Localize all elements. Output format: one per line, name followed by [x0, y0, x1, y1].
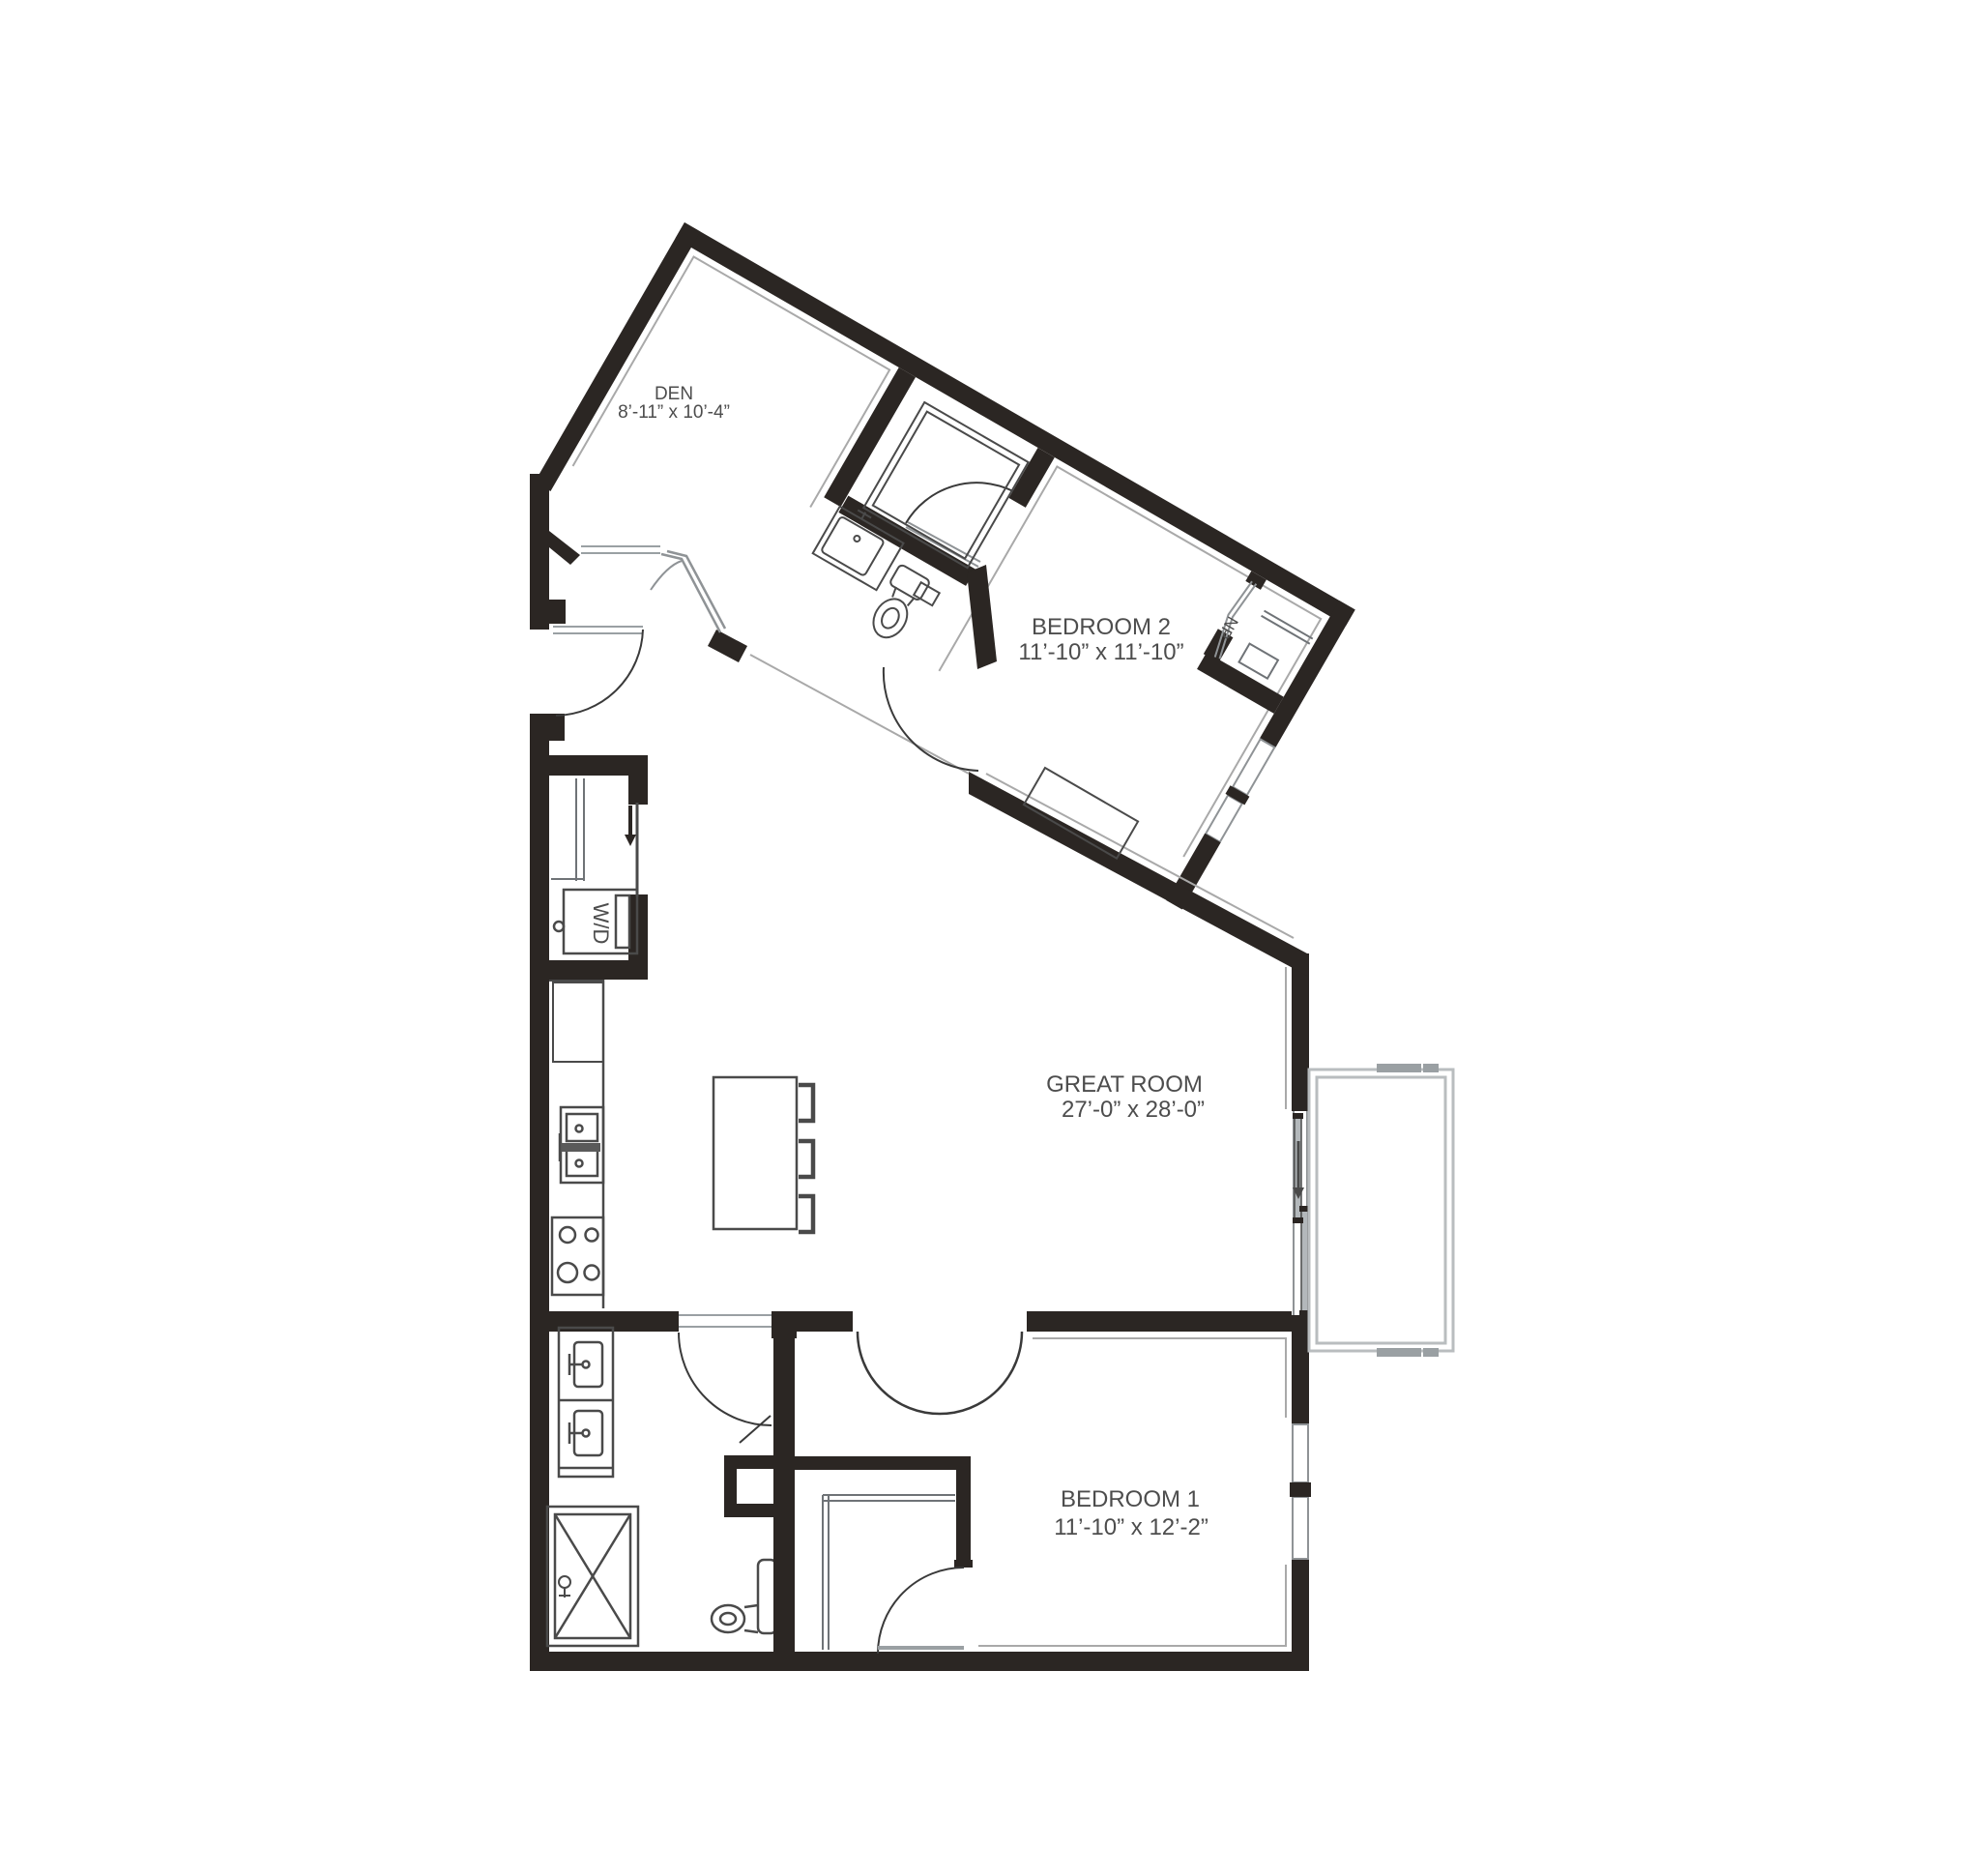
svg-text:GREAT ROOM: GREAT ROOM [1046, 1071, 1203, 1098]
svg-text:W/D: W/D [589, 903, 613, 945]
svg-text:DEN: DEN [655, 384, 693, 404]
svg-text:8’-11” x 10’-4”: 8’-11” x 10’-4” [618, 402, 730, 423]
svg-text:27’-0” x 28’-0”: 27’-0” x 28’-0” [1062, 1097, 1205, 1123]
svg-text:BEDROOM 1: BEDROOM 1 [1061, 1486, 1200, 1512]
svg-text:11’-10” x 11’-10”: 11’-10” x 11’-10” [1018, 639, 1183, 665]
svg-text:11’-10” x 12’-2”: 11’-10” x 12’-2” [1054, 1514, 1208, 1540]
svg-text:BEDROOM 2: BEDROOM 2 [1032, 614, 1171, 640]
